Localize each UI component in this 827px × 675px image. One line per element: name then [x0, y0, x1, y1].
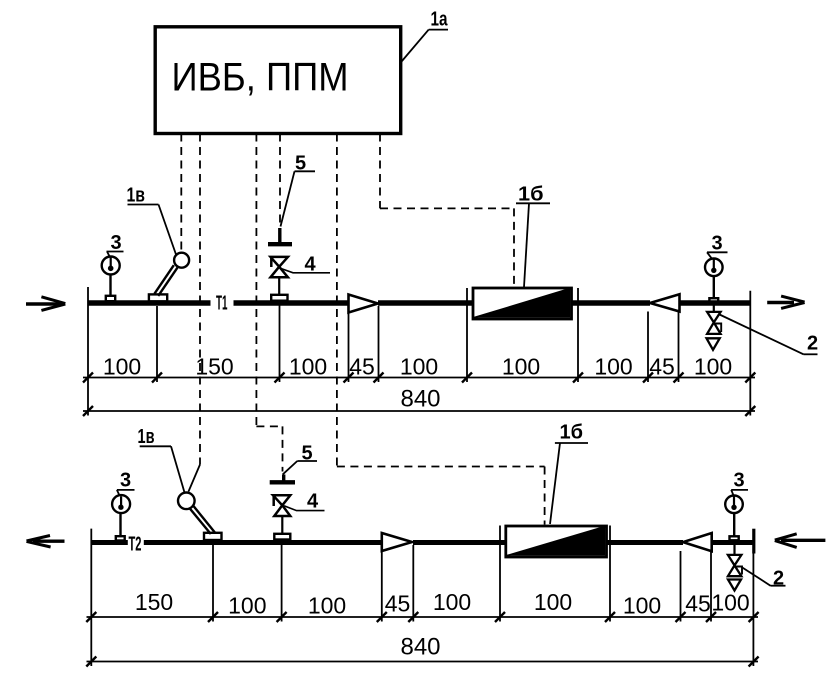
- svg-text:45: 45: [385, 591, 411, 617]
- svg-text:100: 100: [623, 593, 661, 619]
- svg-text:840: 840: [400, 634, 440, 661]
- svg-text:1б: 1б: [560, 422, 584, 444]
- svg-text:1в: 1в: [127, 185, 146, 207]
- svg-text:100: 100: [400, 354, 438, 380]
- svg-text:3: 3: [120, 470, 131, 492]
- svg-text:1а: 1а: [431, 9, 449, 31]
- svg-text:2: 2: [807, 333, 818, 355]
- svg-text:3: 3: [734, 470, 745, 492]
- svg-text:100: 100: [289, 354, 327, 380]
- svg-text:1б: 1б: [518, 184, 544, 206]
- svg-text:100: 100: [433, 589, 471, 615]
- svg-text:100: 100: [694, 354, 732, 380]
- svg-text:4: 4: [307, 491, 319, 513]
- svg-text:ИВБ, ППМ: ИВБ, ППМ: [172, 56, 349, 100]
- svg-text:100: 100: [534, 589, 572, 615]
- svg-text:150: 150: [195, 354, 233, 380]
- svg-text:3: 3: [712, 233, 723, 255]
- svg-text:100: 100: [308, 593, 346, 619]
- svg-text:45: 45: [685, 591, 711, 617]
- svg-text:1в: 1в: [138, 426, 155, 448]
- svg-text:100: 100: [228, 593, 266, 619]
- svg-text:100: 100: [502, 354, 540, 380]
- svg-text:150: 150: [135, 589, 173, 615]
- svg-text:840: 840: [400, 386, 440, 413]
- svg-text:Т2: Т2: [129, 534, 142, 556]
- svg-text:100: 100: [594, 354, 632, 380]
- svg-text:100: 100: [103, 354, 141, 380]
- svg-text:45: 45: [649, 354, 675, 380]
- svg-text:45: 45: [349, 354, 375, 380]
- svg-text:100: 100: [711, 590, 749, 616]
- svg-text:Т1: Т1: [216, 293, 228, 315]
